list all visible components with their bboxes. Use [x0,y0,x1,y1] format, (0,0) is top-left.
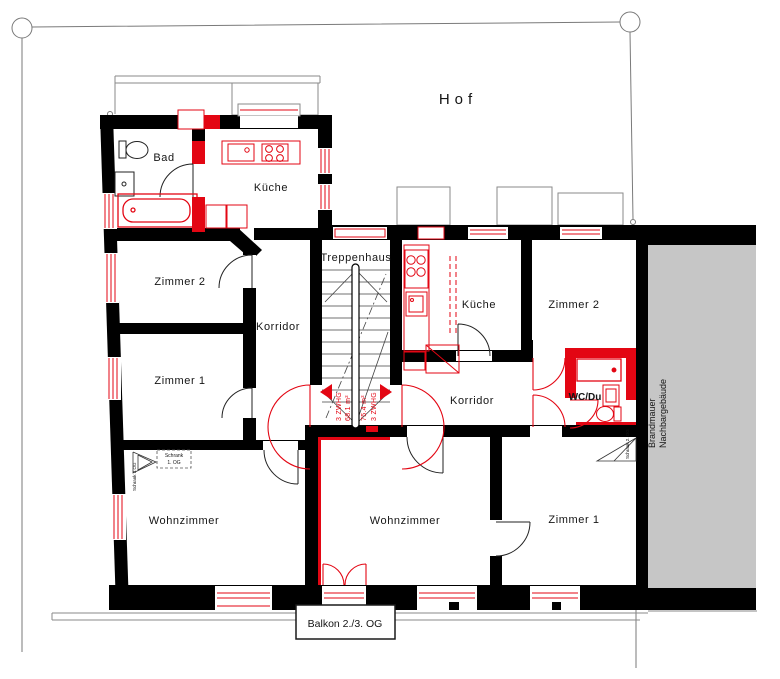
window-wohnzimmer-left-south [215,586,272,610]
balcony-french-door [323,564,366,585]
wohnzimmer-mid-label: Wohnzimmer [370,515,441,527]
schrank-3og-label: Schrank 3.OG [132,462,137,491]
apartment-tag-right: 75.4 m² 3 ZWHG [361,384,392,421]
window-treppenhaus [333,227,387,239]
sink-icon [603,385,619,406]
bad-fixtures [115,141,148,196]
window-wohnzimmer-left [111,494,126,540]
window-zimmer1-right-south [530,586,580,610]
schrank-1og-label-line1: Schrank [165,453,184,459]
zimmer1-right-door [533,395,565,427]
korridor-right-label: Korridor [450,395,494,407]
bathtub-icon [118,194,197,227]
kueche-left-label: Küche [254,182,288,194]
zimmer1-left-label: Zimmer 1 [154,375,205,387]
window-bad [102,193,117,229]
brandmauer-label-line1: Brandmauer [647,398,657,448]
zimmer2-left-label: Zimmer 2 [154,276,205,288]
wohnzimmer-left-door [264,450,298,484]
hof-bay-outlines [397,187,623,225]
window-top-door [418,227,444,239]
survey-marker-icon [12,18,32,38]
zimmer2-right-label: Zimmer 2 [548,299,599,311]
floor-plan-canvas: Hof Bad Küche Treppenhaus Zimmer 2 Korri… [0,0,780,679]
window-kitchen-bay [238,104,300,128]
toilet-icon [119,141,148,159]
window-wing-top-door [178,110,204,129]
survey-marker-icon [620,12,640,32]
schrank-1og-label-line2: 1. OG [167,460,180,466]
stair-handrail [352,264,359,428]
apartment-right-area: 75.4 m² [361,395,368,421]
floorplan-page: Hof Bad Küche Treppenhaus Zimmer 2 Korri… [0,0,780,679]
window-zimmer2-left [104,253,119,303]
window-wohnzimmer-mid-south [417,586,477,610]
treppenhaus-label: Treppenhaus [320,252,391,264]
stove-icon [405,250,428,288]
shower-icon [577,359,621,381]
site-survey-lines [12,12,640,668]
bad-door [160,164,193,197]
balcony-label-box: Balkon 2./3. OG [296,605,395,639]
toilet-icon [597,407,622,422]
wohnzimmer-left-label: Wohnzimmer [149,515,220,527]
apartment-tag-left: 3 ZWHG 68.1 m² [320,384,352,421]
hof-label: Hof [439,91,477,108]
balcony-label: Balkon 2./3. OG [308,618,383,630]
schrank-2og-label: Schrank 2. OG [625,429,630,459]
zimmer1-right-label: Zimmer 1 [548,514,599,526]
apartment-right-type: 3 ZWHG [371,392,378,421]
window-zimmer2-right [560,227,602,239]
apartment-left-area: 68.1 m² [345,395,352,421]
entrance-left-door [268,385,310,469]
window-wing-right-2 [318,184,332,210]
sink-icon [115,172,134,196]
brandmauer-label-line2: Nachbargebäude [658,379,668,448]
bad-label: Bad [153,152,174,164]
wc-du-label: WC/Du [569,392,602,403]
window-zimmer1-left [106,357,121,400]
window-kueche-right [468,227,508,239]
kitchen-sink-icon [406,292,427,316]
wc-du-fixtures [577,359,621,422]
staircase [322,264,390,428]
apartment-left-type: 3 ZWHG [336,392,343,421]
window-wing-right-1 [318,148,332,174]
kitchen-sink-icon [228,144,254,161]
zimmer2-right-door [533,358,565,390]
kueche-right-label: Küche [462,299,496,311]
stove-icon [262,144,288,161]
korridor-left-label: Korridor [256,321,300,333]
